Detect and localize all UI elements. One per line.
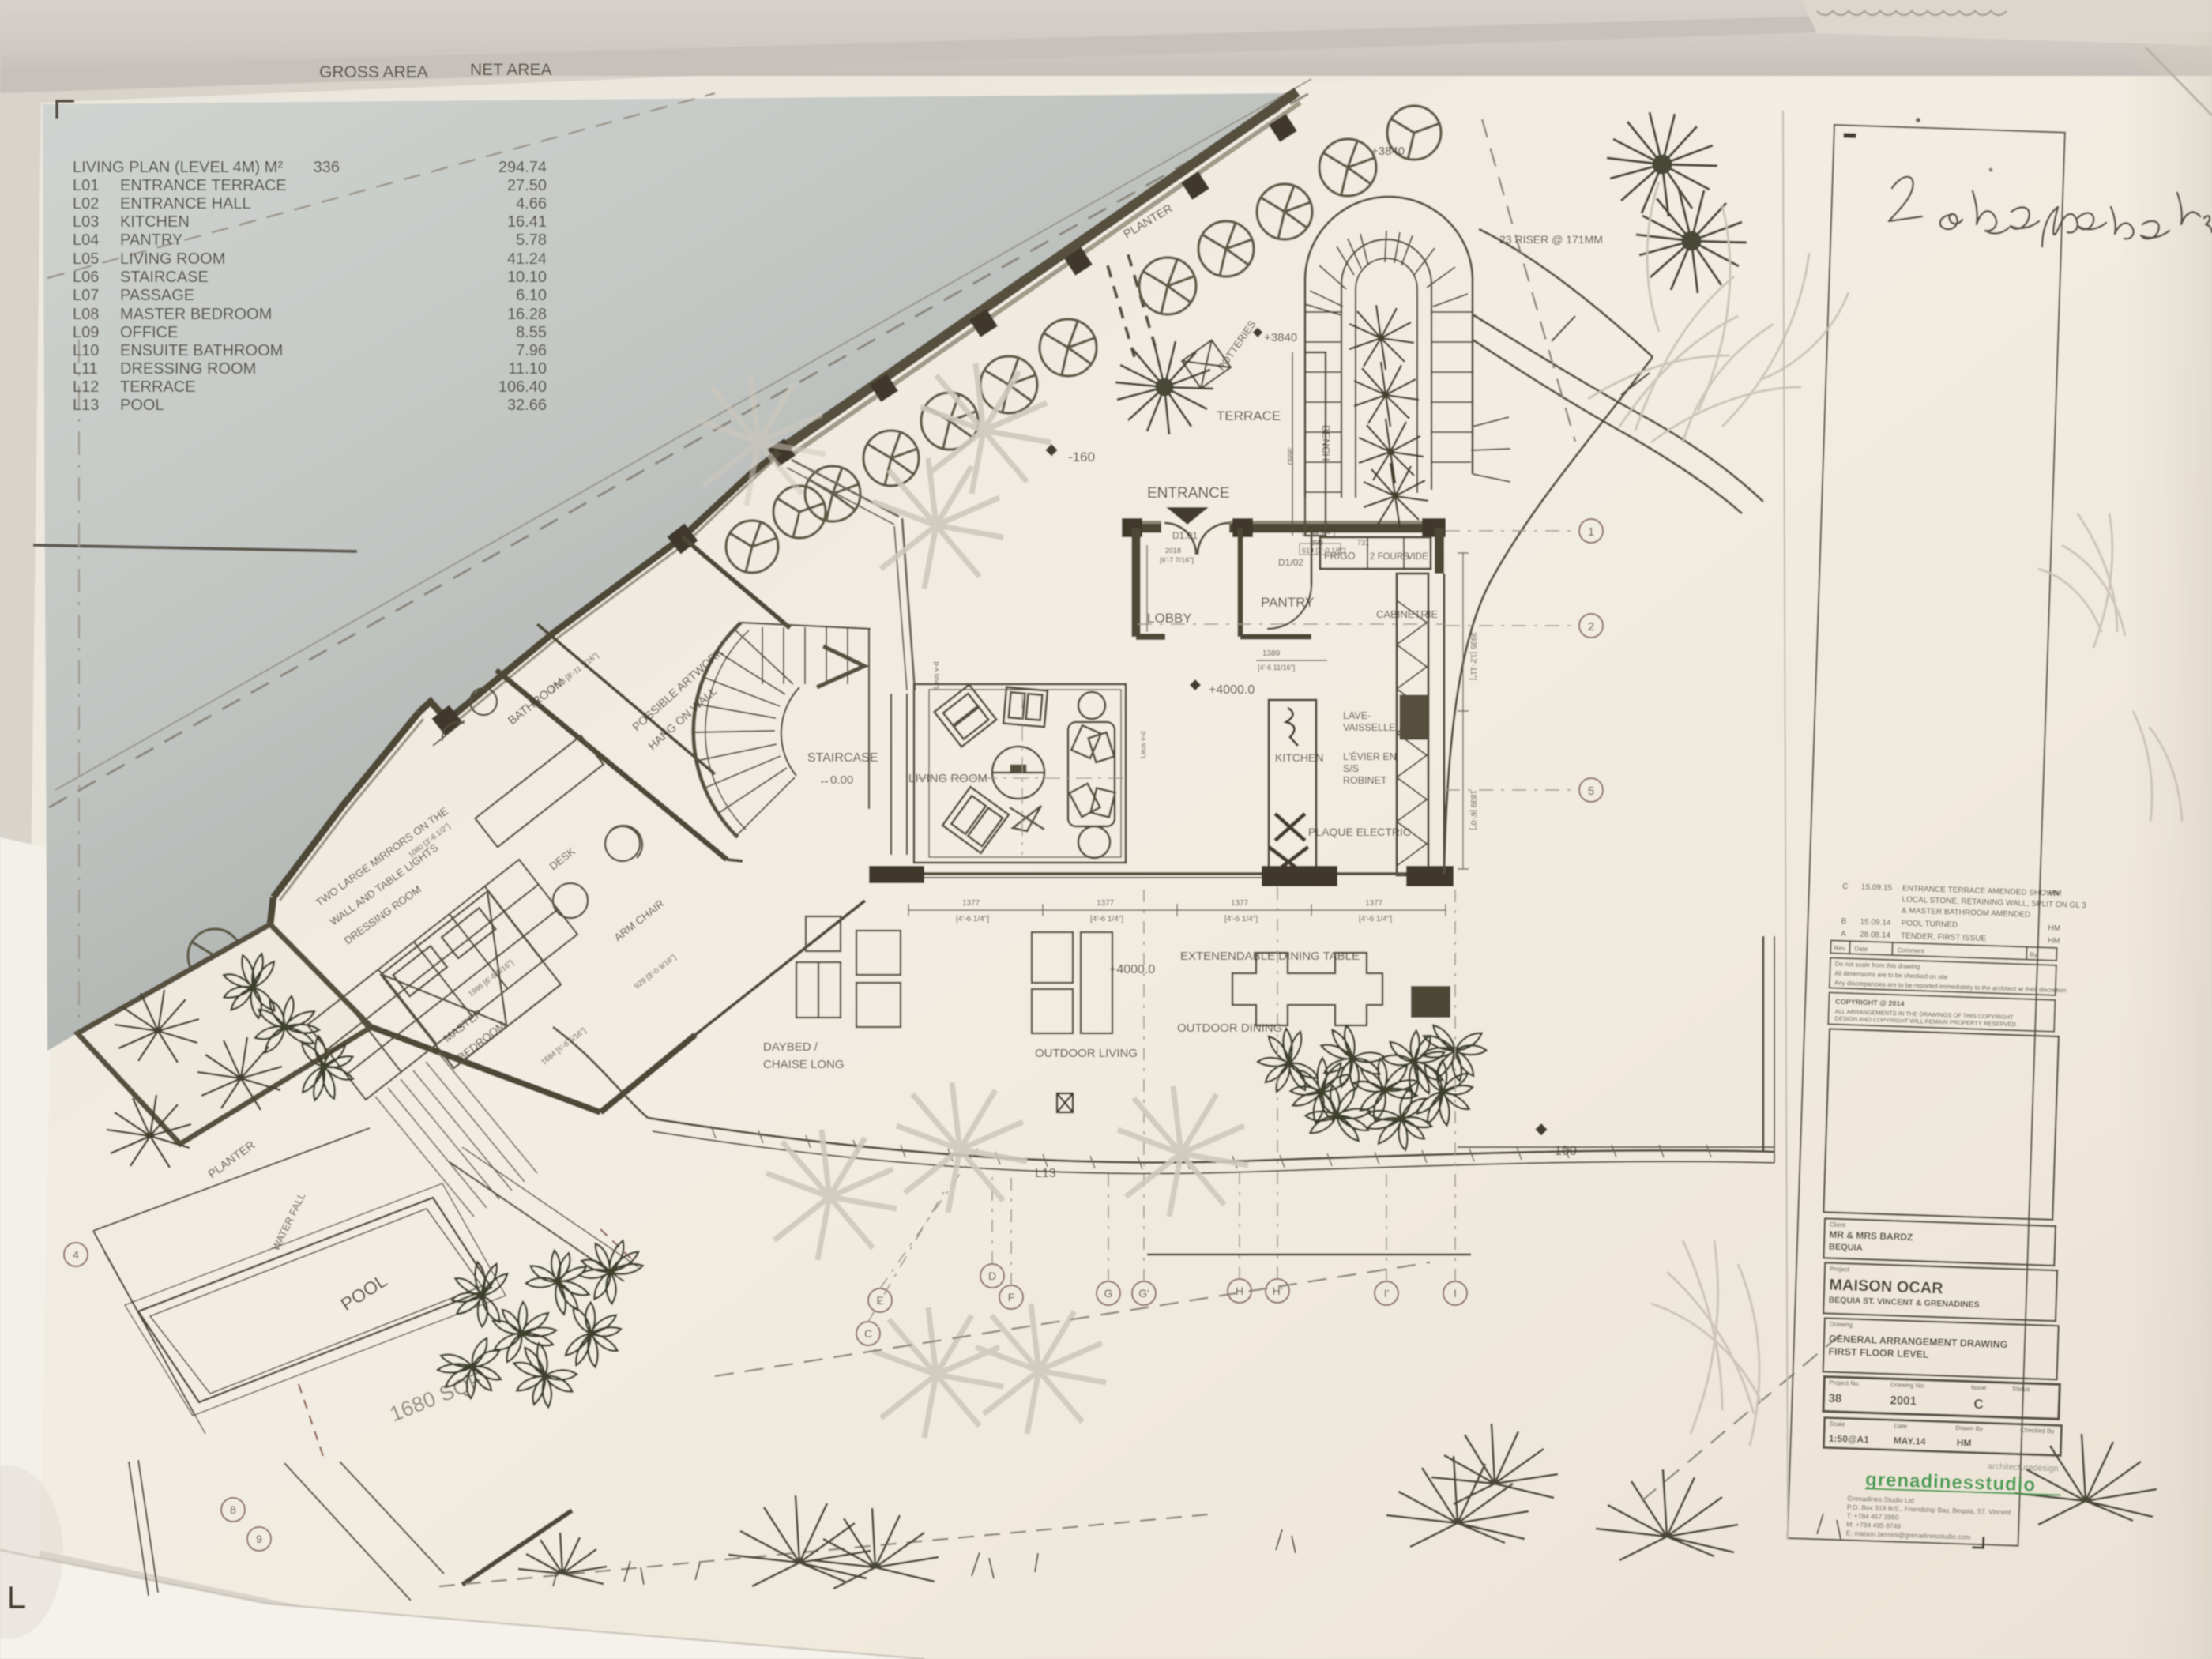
svg-text:+3840: +3840: [1264, 331, 1297, 344]
svg-text:L03: L03: [73, 213, 99, 231]
svg-text:L08: L08: [73, 306, 99, 323]
svg-text:Drawing: Drawing: [1830, 1321, 1853, 1329]
svg-text:L13: L13: [73, 397, 99, 414]
svg-text:2: 2: [1588, 620, 1594, 634]
svg-text:ENTRANCE TERRACE: ENTRANCE TERRACE: [120, 177, 287, 194]
svg-text:CABINETRIE: CABINETRIE: [1376, 608, 1438, 620]
svg-text:VIDE: VIDE: [1407, 552, 1428, 562]
svg-text:5.78: 5.78: [516, 231, 547, 249]
svg-text:15.09.14: 15.09.14: [1860, 918, 1891, 927]
svg-text:HM: HM: [2049, 890, 2062, 899]
svg-text:KITCHEN: KITCHEN: [1275, 751, 1323, 764]
svg-text:LIVING PLAN (LEVEL 4M) M²: LIVING PLAN (LEVEL 4M) M²: [73, 159, 283, 176]
svg-text:L06: L06: [73, 269, 99, 286]
svg-text:3935 [12'-11"]: 3935 [12'-11"]: [1469, 632, 1477, 680]
svg-text:Project: Project: [1830, 1266, 1850, 1273]
svg-text:8: 8: [230, 1503, 236, 1516]
svg-text:F: F: [1008, 1291, 1015, 1303]
svg-text:OUTDOOR DINING: OUTDOOR DINING: [1177, 1021, 1282, 1035]
svg-text:B: B: [1841, 917, 1846, 926]
svg-text:[6'-7 7/16"]: [6'-7 7/16"]: [1160, 556, 1194, 564]
svg-text:1377: 1377: [1097, 899, 1115, 908]
svg-text:336: 336: [314, 159, 340, 176]
svg-text:Client: Client: [1830, 1221, 1847, 1229]
svg-text:HM: HM: [2048, 924, 2060, 934]
svg-text:L10: L10: [73, 342, 99, 359]
svg-text:DRESSING ROOM: DRESSING ROOM: [120, 360, 256, 378]
svg-text:1839 [6'-0"]: 1839 [6'-0"]: [1469, 790, 1477, 830]
svg-text:PANTRY: PANTRY: [1261, 595, 1314, 610]
svg-text:731: 731: [1357, 539, 1369, 547]
svg-text:32.66: 32.66: [507, 397, 547, 414]
svg-text:C: C: [864, 1327, 872, 1340]
svg-text:Leus v-d: Leus v-d: [1139, 731, 1147, 758]
svg-text:+4000.0: +4000.0: [1209, 683, 1255, 697]
svg-text:E: E: [876, 1294, 883, 1307]
svg-text:Rev: Rev: [1834, 945, 1845, 952]
svg-text:3660: 3660: [1285, 447, 1294, 465]
svg-text:[4'-6 1/4"]: [4'-6 1/4"]: [1090, 915, 1123, 924]
svg-text:5: 5: [1588, 784, 1594, 798]
svg-text:1389: 1389: [1262, 649, 1281, 658]
svg-text:I: I: [1454, 1287, 1457, 1300]
svg-text:2001: 2001: [1890, 1394, 1917, 1408]
svg-text:28.08.14: 28.08.14: [1860, 931, 1891, 940]
svg-text:8.55: 8.55: [516, 324, 547, 341]
svg-text:D1.01: D1.01: [1172, 530, 1198, 541]
svg-text:VAISSELLE: VAISSELLE: [1343, 722, 1395, 733]
svg-text:G': G': [1138, 1287, 1149, 1300]
svg-text:L09: L09: [73, 324, 99, 341]
svg-text:D1/02: D1/02: [1278, 557, 1303, 568]
svg-text:6.10: 6.10: [516, 287, 547, 304]
svg-text:11.10: 11.10: [508, 360, 547, 378]
svg-text:[4'-6 1/4"]: [4'-6 1/4"]: [1359, 915, 1392, 924]
svg-text:L01: L01: [73, 177, 99, 194]
svg-text:[2'-11 3/8"]: [2'-11 3/8"]: [1302, 528, 1335, 536]
svg-text:1:50@A1: 1:50@A1: [1829, 1433, 1870, 1446]
svg-text:10.10: 10.10: [507, 269, 547, 286]
svg-text:L13: L13: [1035, 1167, 1056, 1180]
svg-text:L07: L07: [73, 287, 99, 304]
svg-text:16.41: 16.41: [507, 213, 547, 231]
svg-text:Issue: Issue: [1971, 1384, 1987, 1392]
svg-text:15.09.15: 15.09.15: [1861, 883, 1893, 893]
svg-text:ENTRANCE HALL: ENTRANCE HALL: [120, 195, 251, 213]
svg-text:STAIRCASE: STAIRCASE: [120, 269, 209, 286]
svg-text:38: 38: [1828, 1392, 1841, 1406]
svg-text:LOBBY: LOBBY: [1147, 611, 1192, 626]
svg-text:S/S: S/S: [1343, 763, 1359, 774]
svg-text:619 [2'-0 1/8"]: 619 [2'-0 1/8"]: [1302, 547, 1345, 555]
svg-text:Comment: Comment: [1897, 946, 1925, 954]
svg-text:898: 898: [1311, 539, 1323, 547]
svg-text:GROSS AREA: GROSS AREA: [319, 63, 428, 81]
svg-text:H: H: [1236, 1285, 1243, 1297]
svg-text:Drawing No.: Drawing No.: [1890, 1381, 1925, 1389]
svg-text:+4000.0: +4000.0: [1109, 963, 1155, 976]
svg-text:NET AREA: NET AREA: [470, 61, 551, 79]
svg-text:By: By: [2030, 951, 2037, 958]
svg-text:MASTER BEDROOM: MASTER BEDROOM: [120, 306, 272, 323]
svg-text:L02: L02: [73, 195, 99, 213]
svg-text:STAIRCASE: STAIRCASE: [807, 751, 878, 765]
svg-text:Status: Status: [2012, 1385, 2030, 1393]
svg-text:Date: Date: [1854, 945, 1868, 953]
svg-text:TERRACE: TERRACE: [1217, 408, 1281, 423]
svg-text:Date: Date: [1894, 1422, 1908, 1430]
svg-text:Leus v-d: Leus v-d: [932, 661, 940, 689]
svg-text:27.50: 27.50: [507, 177, 547, 194]
svg-text:106.40: 106.40: [498, 378, 547, 396]
svg-text:16.28: 16.28: [507, 306, 547, 323]
svg-text:Checked By: Checked By: [2020, 1427, 2054, 1435]
svg-text:CHAISE LONG: CHAISE LONG: [763, 1058, 845, 1071]
svg-text:294.74: 294.74: [498, 159, 547, 176]
svg-text:KITCHEN: KITCHEN: [120, 213, 190, 231]
svg-text:↔0.00: ↔0.00: [818, 773, 853, 787]
svg-text:ROBINET: ROBINET: [1343, 775, 1387, 786]
svg-text:G: G: [1104, 1287, 1113, 1300]
svg-text:1: 1: [1588, 525, 1594, 539]
svg-text:I': I': [1384, 1287, 1390, 1300]
svg-text:1377: 1377: [962, 899, 980, 908]
svg-text:-160: -160: [1068, 450, 1095, 465]
svg-text:Drawn By: Drawn By: [1955, 1424, 1983, 1432]
svg-text:[4'-6 1/4"]: [4'-6 1/4"]: [1224, 915, 1258, 924]
svg-text:+3840: +3840: [1371, 145, 1405, 158]
svg-text:1377: 1377: [1365, 899, 1383, 908]
svg-text:OFFICE: OFFICE: [120, 324, 178, 341]
svg-text:41.24: 41.24: [507, 250, 547, 268]
svg-text:BEQUIA: BEQUIA: [1829, 1243, 1863, 1253]
svg-text:9: 9: [256, 1533, 262, 1545]
svg-text:L04: L04: [73, 231, 99, 249]
svg-text:Scale: Scale: [1829, 1420, 1845, 1428]
svg-text:LIVING ROOM: LIVING ROOM: [120, 250, 225, 268]
svg-text:OUTDOOR LIVING: OUTDOOR LIVING: [1035, 1047, 1138, 1060]
svg-text:-100: -100: [1550, 1143, 1577, 1158]
svg-text:[4'-6 1/4"]: [4'-6 1/4"]: [956, 915, 989, 924]
svg-text:HM: HM: [2048, 937, 2060, 946]
svg-text:HM: HM: [1957, 1437, 1972, 1449]
svg-text:L05: L05: [73, 250, 99, 268]
svg-text:A: A: [1841, 930, 1846, 939]
svg-text:1377: 1377: [1231, 899, 1249, 908]
svg-text:Project No.: Project No.: [1829, 1379, 1860, 1387]
svg-text:ENSUITE BATHROOM: ENSUITE BATHROOM: [120, 342, 283, 359]
svg-text:C: C: [1973, 1397, 1984, 1412]
svg-text:BENCH: BENCH: [1320, 425, 1332, 461]
svg-text:PLAQUE ELECTRIC: PLAQUE ELECTRIC: [1308, 826, 1411, 838]
svg-text:L12: L12: [73, 378, 99, 396]
svg-text:L'ÉVIER EN: L'ÉVIER EN: [1343, 750, 1397, 762]
svg-text:C: C: [1842, 882, 1849, 891]
svg-text:EXTENENDABLE DINING TABLE: EXTENENDABLE DINING TABLE: [1180, 950, 1360, 963]
svg-text:LAVE-: LAVE-: [1343, 710, 1371, 721]
svg-text:[4'-6 11/16"]: [4'-6 11/16"]: [1258, 664, 1295, 671]
svg-text:PANTRY: PANTRY: [120, 231, 182, 249]
svg-text:7.96: 7.96: [516, 342, 547, 359]
svg-text:2 FOURS: 2 FOURS: [1370, 552, 1409, 562]
svg-text:4.66: 4.66: [516, 195, 547, 213]
svg-text:2018: 2018: [1165, 547, 1181, 555]
svg-text:D: D: [988, 1270, 996, 1282]
svg-text:DAYBED /: DAYBED /: [763, 1040, 818, 1054]
svg-text:4: 4: [73, 1248, 79, 1261]
svg-text:TERRACE: TERRACE: [120, 378, 196, 396]
svg-text:PASSAGE: PASSAGE: [120, 287, 194, 304]
svg-text:L11: L11: [73, 360, 98, 378]
svg-text:ENTRANCE: ENTRANCE: [1147, 485, 1230, 502]
svg-text:MAY.14: MAY.14: [1894, 1435, 1927, 1446]
svg-text:POOL: POOL: [120, 397, 164, 414]
